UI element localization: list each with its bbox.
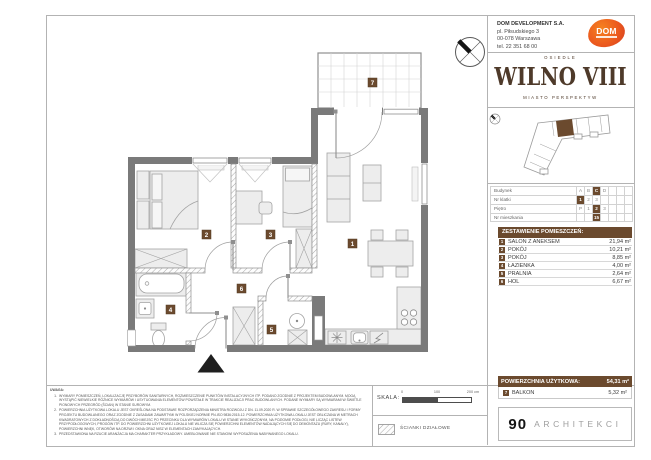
selected-cell: C: [593, 186, 601, 195]
north-compass-icon: [452, 34, 488, 70]
logo-text: DOM: [588, 26, 625, 36]
dishwasher-icon: [328, 331, 346, 344]
selected-cell: 15: [593, 213, 601, 222]
room-row: 5 PRALNIA 2,64 m²: [498, 270, 632, 278]
desk: [234, 191, 262, 224]
room-row: 2 POKÓJ 10,21 m²: [498, 246, 632, 254]
dining-table: [368, 241, 413, 266]
partition-legend-swatch: [378, 424, 395, 435]
mini-compass-icon: [490, 114, 500, 124]
room-door: [262, 240, 292, 270]
partition-legend-label: ŚCIANKI DZIAŁOWE: [400, 426, 450, 431]
company-phone: tel. 22 351 68 00: [497, 44, 589, 52]
location-grid: Budynek A B C D Nr klatki 1 2 3 Piętro P…: [490, 186, 633, 222]
shaft-niche: [315, 316, 323, 340]
room-badge-3: 3: [266, 230, 275, 239]
room-number-badge: 7: [503, 390, 509, 396]
company-address: DOM DEVELOPMENT S.A. pl. Piłsudskiego 3 …: [497, 21, 589, 51]
laundry-door: [266, 274, 290, 298]
selected-cell: 2: [593, 204, 601, 213]
selected-cell: 1: [577, 195, 585, 204]
bed-double: [137, 171, 198, 229]
wall-niche: [128, 330, 136, 346]
architects-logo: 90 ARCHITEKCI: [498, 407, 632, 441]
note-item: 2. POWIERZCHNIA UŻYTKOWA LOKALU JEST OKR…: [50, 408, 368, 431]
room-door: [205, 240, 235, 270]
grid-row-mieszkanie: Nr mieszkania 15: [490, 213, 633, 222]
grid-row-pietro: Piętro P 1 2 3: [490, 204, 633, 213]
note-item: 3. PRZEDSTAWIONA NA RZUCIE ARANŻACJA MA …: [50, 432, 368, 437]
room-number-badge: 2: [499, 247, 505, 253]
company-city: 00-078 Warszawa: [497, 36, 589, 44]
balcony-row: 7 BALKON 5,32 m²: [498, 387, 632, 399]
room-row: 6 HOL 6,67 m²: [498, 278, 632, 286]
svg-text:5: 5: [270, 327, 274, 334]
highlighted-unit: [556, 119, 574, 137]
room-badge-5: 5: [267, 325, 276, 334]
scale-bar-filled: [402, 397, 437, 403]
chair: [259, 202, 272, 214]
kitchen-sink-icon: [351, 331, 368, 344]
furniture: [135, 153, 421, 348]
room-number-badge: 1: [499, 239, 505, 245]
room-number-badge: 4: [499, 263, 505, 269]
svg-text:3: 3: [269, 232, 273, 239]
room-badge-1: 1: [348, 239, 357, 248]
logo-underline: [596, 36, 617, 38]
room-row: 4 ŁAZIENKA 4,00 m²: [498, 262, 632, 270]
room-badge-7: 7: [368, 78, 377, 87]
radiator: [412, 167, 418, 201]
room-badge-2: 2: [202, 230, 211, 239]
room-badge-4: 4: [166, 305, 175, 314]
svg-text:4: 4: [169, 307, 173, 314]
bathtub: [136, 271, 187, 296]
divider: [372, 415, 487, 416]
usable-area-label: POWIERZCHNIA UŻYTKOWA:: [501, 379, 580, 385]
closet: [233, 307, 255, 345]
project-logo: WILNO VIII: [487, 62, 634, 91]
kitchen-counter: [397, 287, 421, 329]
room-badge-6: 6: [237, 284, 246, 293]
scale-bar-outline: [437, 397, 472, 403]
room-number-badge: 3: [499, 255, 505, 261]
radiator: [242, 165, 268, 170]
balcony-door: [334, 107, 383, 158]
floorplan-sheet: 1 2 3 4 5 6 7 UWAGA: 1. WYMIARY POMIESZC…: [0, 0, 651, 460]
scale-label: SKALA:: [377, 395, 400, 401]
architects-logo-name: ARCHITEKCI: [534, 419, 621, 429]
scale-tick: 0: [399, 390, 405, 394]
company-street: pl. Piłsudskiego 3: [497, 29, 589, 37]
entrance-arrow: [198, 354, 225, 373]
floor-plan: 1 2 3 4 5 6 7: [46, 15, 487, 385]
washbasin: [136, 299, 154, 318]
note-item: 1. WYMIARY POMIESZCZEŃ, LOKALIZACJĘ PRZY…: [50, 394, 368, 408]
bed-single: [283, 166, 312, 227]
side-table: [363, 165, 381, 201]
divider: [487, 52, 634, 53]
room-row: 3 POKÓJ 8,85 m²: [498, 254, 632, 262]
window: [383, 107, 419, 116]
svg-text:6: 6: [240, 286, 244, 293]
wardrobe: [135, 249, 187, 268]
project-tagline: MIASTO PERSPEKTYW: [487, 95, 634, 100]
scale-tick: 100: [429, 390, 445, 394]
svg-text:7: 7: [371, 80, 375, 87]
stove-icon: [370, 331, 388, 344]
estate-label: OSIEDLE: [487, 55, 634, 60]
notes-heading: UWAGA:: [50, 388, 368, 393]
svg-text:1: 1: [351, 241, 355, 248]
building-footprint: [524, 115, 610, 175]
window: [420, 163, 429, 205]
svg-text:2: 2: [205, 232, 209, 239]
dom-development-logo: DOM: [588, 19, 625, 47]
wardrobe: [296, 229, 312, 268]
grid-row-budynek: Budynek A B C D: [490, 186, 633, 195]
water-heater: [290, 314, 305, 329]
toilet: [151, 323, 166, 348]
bathroom-door: [189, 311, 219, 341]
architects-logo-number: 90: [508, 416, 527, 433]
building-overview-map: [488, 109, 633, 181]
divider: [487, 183, 634, 184]
washing-machine: [288, 330, 307, 345]
room-number-badge: 6: [499, 279, 505, 285]
divider: [487, 107, 634, 108]
room-schedule: 1 SALON Z ANEKSEM 21,94 m² 2 POKÓJ 10,21…: [498, 238, 632, 286]
usable-area-value: 54,31 m²: [607, 379, 629, 385]
room-schedule-header: ZESTAWIENIE POMIESZCZEŃ:: [498, 227, 632, 238]
grid-row-klatka: Nr klatki 1 2 3: [490, 195, 633, 204]
entrance-door: [195, 316, 228, 354]
scale-tick: 200 cm: [461, 390, 485, 394]
radiator: [198, 165, 224, 170]
room-number-badge: 5: [499, 271, 505, 277]
usable-area-bar: POWIERZCHNIA UŻYTKOWA: 54,31 m²: [498, 376, 632, 387]
notes-block: UWAGA: 1. WYMIARY POMIESZCZEŃ, LOKALIZAC…: [50, 388, 368, 438]
doors: [189, 107, 382, 353]
company-name: DOM DEVELOPMENT S.A.: [497, 21, 589, 29]
room-row: 1 SALON Z ANEKSEM 21,94 m²: [498, 238, 632, 246]
sofa: [327, 153, 350, 222]
